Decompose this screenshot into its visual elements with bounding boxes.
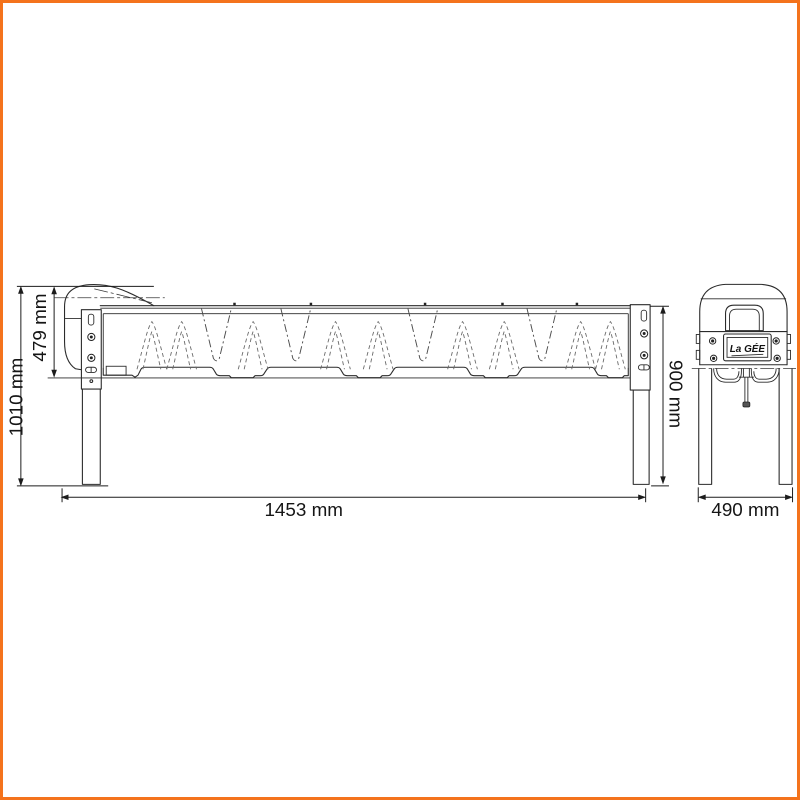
dimension-overall-height: 1010 mm	[5, 286, 153, 486]
side-leg-right	[779, 369, 792, 485]
end-cap	[55, 285, 165, 370]
arrowhead-right	[638, 494, 646, 500]
dimension-leg-height: 900 mm	[650, 306, 686, 486]
end-cap-top-outline	[65, 285, 154, 307]
dome-outline	[700, 284, 787, 331]
bracket-plate	[81, 310, 101, 389]
plate-bolt-center	[711, 339, 714, 342]
brand-plate: La GÉE	[709, 334, 780, 361]
arrowhead-down	[18, 478, 24, 486]
dimension-label-overall-height: 1010 mm	[5, 358, 26, 437]
rail-tick	[576, 303, 578, 305]
arrowhead-left	[698, 494, 706, 500]
arrowhead-right	[785, 494, 793, 500]
arrowhead-up	[51, 286, 57, 294]
arrowhead-down	[660, 476, 666, 484]
mounting-bracket-right	[630, 305, 650, 390]
front-view	[48, 285, 650, 485]
agitator-weight	[743, 402, 750, 407]
trough-body	[48, 314, 631, 378]
technical-drawing: La GÉE	[3, 3, 797, 797]
dimension-overall-width: 490 mm	[698, 487, 793, 520]
trough-rail	[100, 303, 630, 314]
rail-tick	[233, 303, 235, 305]
plate-bolt-center	[712, 357, 715, 360]
bracket-bolt-center	[643, 354, 646, 357]
dimension-label-trough-height: 479 mm	[29, 294, 50, 362]
dimension-trough-height: 479 mm	[29, 286, 57, 377]
arrowhead-up	[18, 286, 24, 294]
trough-bottom-profile	[103, 367, 628, 377]
agitator-rod	[745, 377, 748, 402]
pocket-left-inner	[717, 368, 739, 379]
leg-left	[82, 389, 100, 484]
dimension-label-overall-width: 490 mm	[711, 499, 779, 520]
trough-underside	[714, 368, 780, 407]
pocket-right	[751, 368, 779, 382]
handle-inner	[730, 309, 760, 330]
plate-bolt-center	[776, 357, 779, 360]
bracket-plate	[630, 305, 650, 390]
rail-tick	[310, 303, 312, 305]
bracket-slot	[641, 310, 646, 321]
bracket-slot	[88, 314, 93, 325]
arrowhead-up	[660, 306, 666, 314]
pocket-left	[714, 368, 742, 382]
dimension-overall-length: 1453 mm	[61, 488, 647, 520]
brand-logo-text: La GÉE	[730, 344, 766, 355]
mounting-bracket-left	[81, 310, 101, 389]
plate-bolt-center	[775, 339, 778, 342]
diagram-canvas: La GÉE	[0, 0, 800, 800]
side-leg-left	[699, 369, 712, 485]
bracket-pin	[90, 380, 93, 383]
dimension-label-leg-height: 900 mm	[665, 360, 686, 428]
arrowhead-down	[51, 370, 57, 378]
rail-tick	[501, 303, 503, 305]
end-cap-left-outline	[65, 307, 82, 370]
end-view: La GÉE	[692, 284, 796, 484]
drain-detail-box	[106, 366, 126, 375]
handle	[726, 305, 764, 330]
bracket-bolt-center	[643, 332, 646, 335]
rail-tick	[424, 303, 426, 305]
leg-right	[633, 390, 649, 484]
pocket-right-inner	[754, 368, 776, 379]
dimension-label-overall-length: 1453 mm	[264, 499, 343, 520]
end-cap-hinge-line	[94, 289, 152, 303]
bracket-bolt-center	[90, 356, 93, 359]
bracket-bolt-center	[90, 335, 93, 338]
